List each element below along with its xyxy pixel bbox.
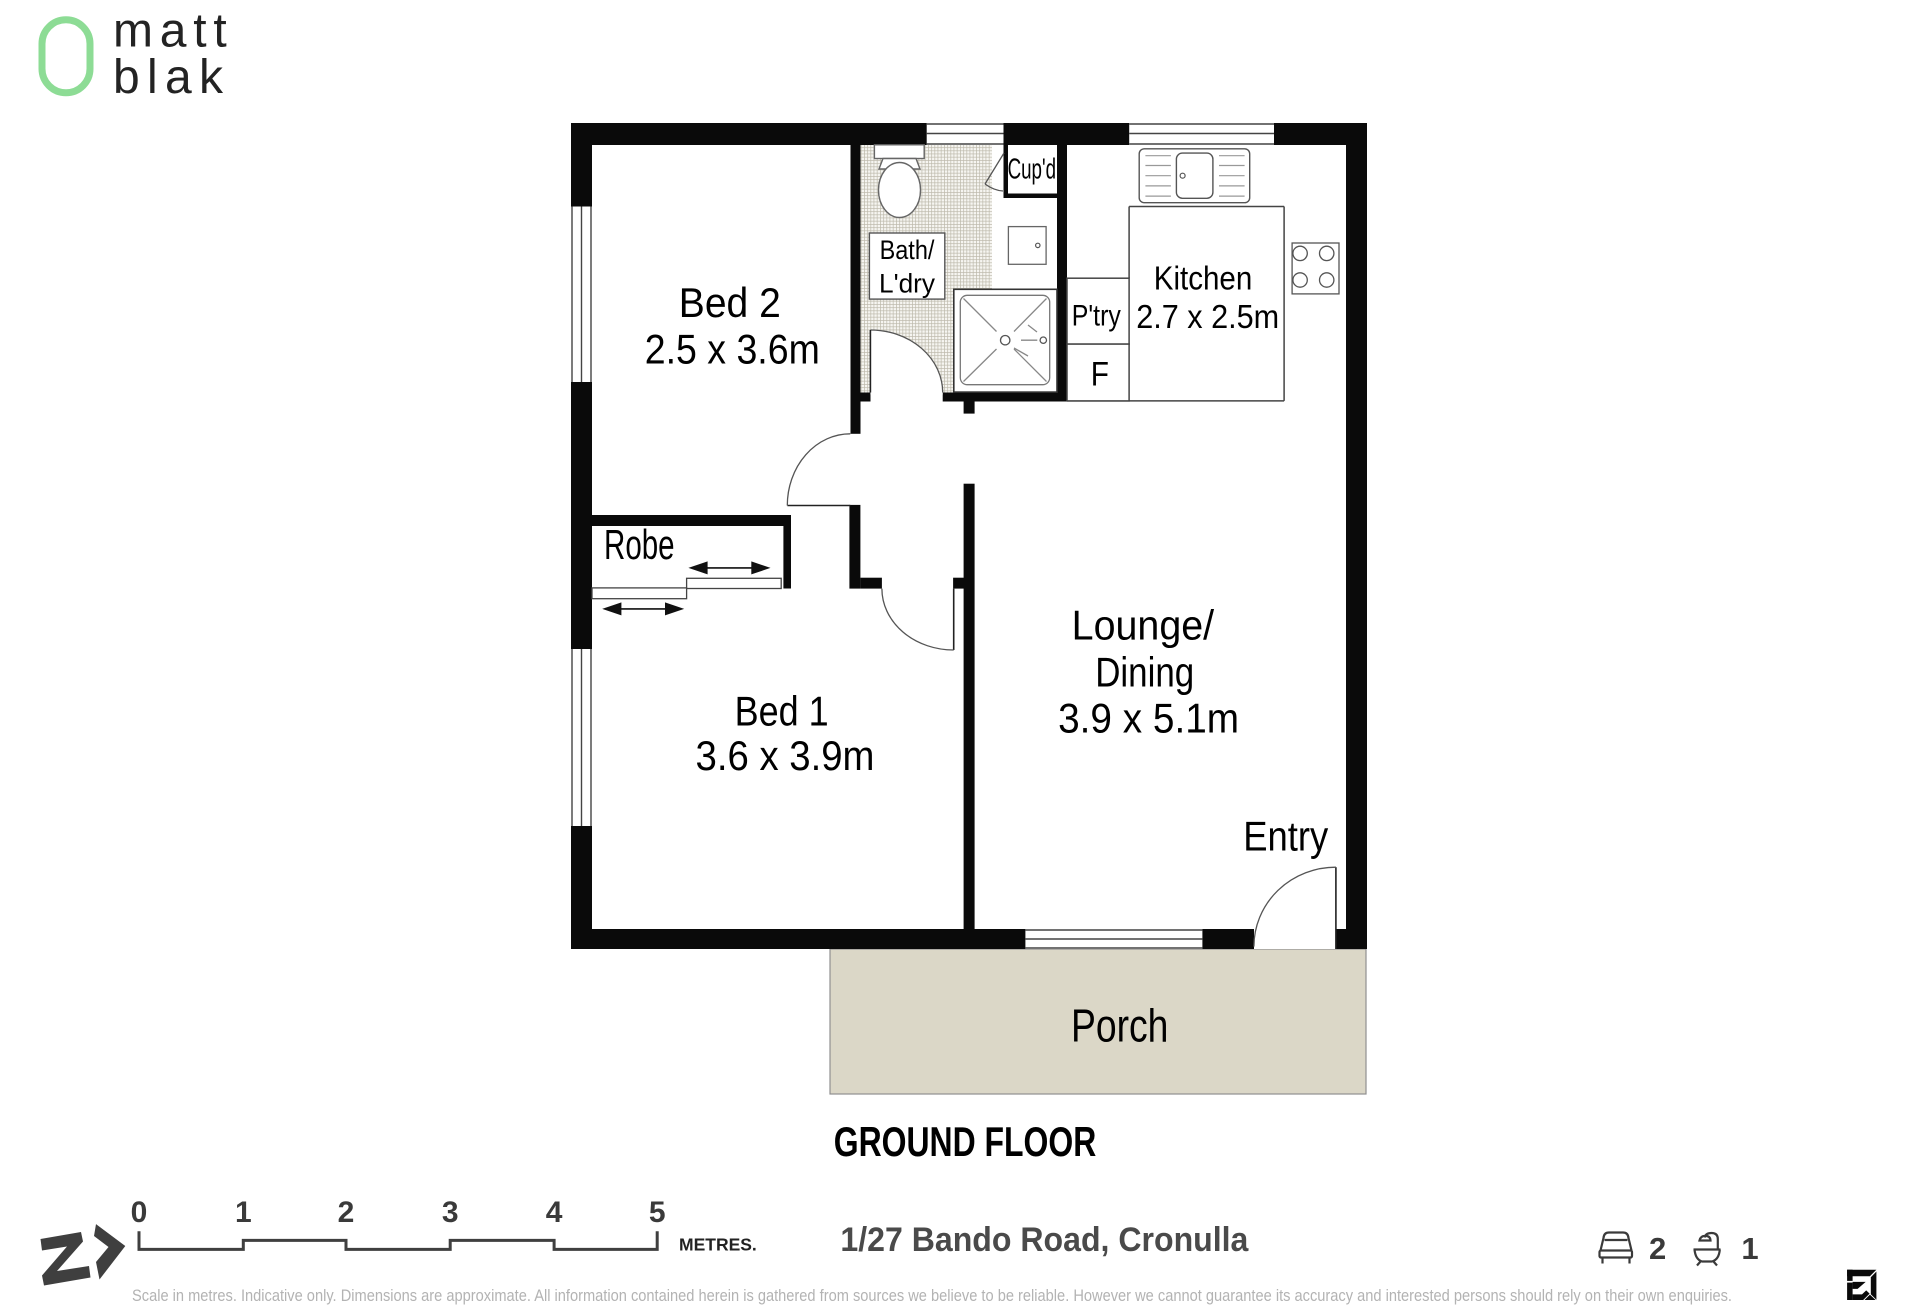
svg-text:L'dry: L'dry — [879, 269, 935, 299]
svg-text:5: 5 — [649, 1196, 666, 1229]
svg-text:matt: matt — [113, 4, 234, 57]
svg-text:F: F — [1091, 356, 1109, 394]
svg-text:P'try: P'try — [1072, 299, 1121, 332]
svg-text:Kitchen: Kitchen — [1154, 260, 1253, 297]
svg-text:4: 4 — [546, 1196, 563, 1229]
svg-text:2.7 x 2.5m: 2.7 x 2.5m — [1136, 298, 1279, 335]
svg-text:Bed 1: Bed 1 — [735, 688, 829, 735]
svg-text:2: 2 — [338, 1196, 355, 1229]
svg-text:blak: blak — [113, 51, 230, 104]
svg-text:3.9 x 5.1m: 3.9 x 5.1m — [1058, 694, 1239, 741]
svg-text:3: 3 — [442, 1196, 459, 1229]
svg-text:Robe: Robe — [604, 521, 675, 568]
svg-text:3.6 x 3.9m: 3.6 x 3.9m — [696, 732, 875, 779]
svg-text:1/27 Bando Road, Cronulla: 1/27 Bando Road, Cronulla — [840, 1221, 1249, 1259]
svg-text:Bed 2: Bed 2 — [679, 279, 781, 326]
svg-text:1: 1 — [235, 1196, 252, 1229]
svg-text:0: 0 — [131, 1196, 148, 1229]
svg-text:Lounge/: Lounge/ — [1072, 601, 1215, 648]
svg-text:1: 1 — [1741, 1231, 1758, 1266]
svg-text:Cup'd: Cup'd — [1008, 154, 1056, 186]
svg-text:METRES.: METRES. — [679, 1235, 757, 1255]
svg-text:Dining: Dining — [1095, 649, 1194, 696]
svg-text:2: 2 — [1649, 1231, 1666, 1266]
svg-text:Entry: Entry — [1243, 813, 1328, 860]
svg-text:Scale in metres. Indicative on: Scale in metres. Indicative only. Dimens… — [132, 1287, 1732, 1305]
svg-text:Bath/: Bath/ — [880, 235, 935, 265]
svg-text:Porch: Porch — [1071, 999, 1169, 1051]
svg-text:GROUND FLOOR: GROUND FLOOR — [834, 1118, 1097, 1165]
svg-text:2.5 x 3.6m: 2.5 x 3.6m — [645, 326, 820, 373]
